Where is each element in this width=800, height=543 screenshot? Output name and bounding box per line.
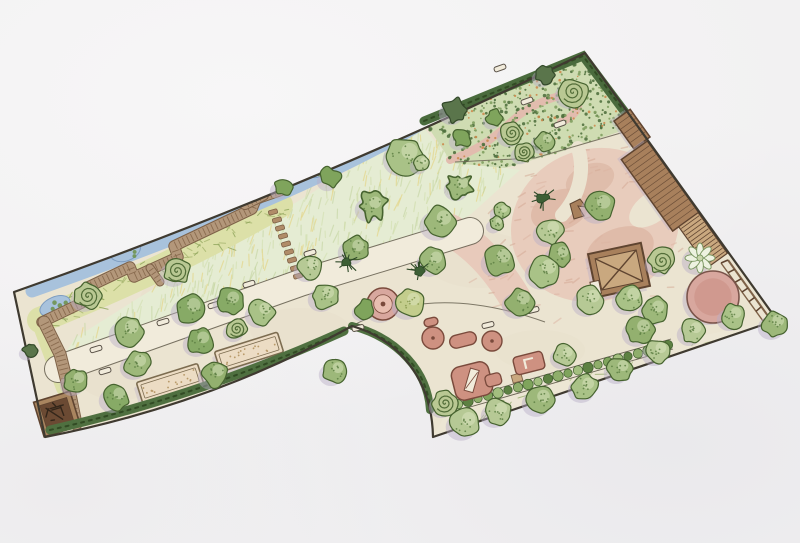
canopy-dot [527, 306, 529, 308]
canopy-dot [469, 419, 471, 421]
canopy-dot [461, 423, 463, 425]
canopy-dot [372, 198, 374, 200]
canopy-dot [631, 298, 633, 300]
canopy-dot [779, 324, 781, 326]
canopy-dot [328, 293, 330, 295]
canopy-dot [125, 333, 127, 335]
canopy-dot [373, 207, 375, 209]
canopy-dot [724, 315, 726, 317]
tree-canopy [275, 180, 294, 196]
canopy-dot [417, 303, 419, 305]
canopy-dot [495, 225, 497, 227]
canopy-dot [646, 324, 648, 326]
canopy-highlight [517, 292, 530, 305]
canopy-dot [545, 141, 547, 143]
canopy-dot [557, 259, 559, 261]
canopy-dot [501, 414, 503, 416]
canopy-dot [330, 301, 332, 303]
canopy-dot [408, 154, 410, 156]
canopy-dot [502, 213, 504, 215]
canopy-dot [580, 378, 582, 380]
canopy-dot [544, 264, 546, 266]
canopy-dot [406, 158, 408, 160]
canopy-dot [263, 308, 265, 310]
canopy-dot [321, 298, 323, 300]
canopy-dot [593, 298, 595, 300]
canopy-dot [404, 145, 406, 147]
pond-plant [256, 192, 259, 195]
canopy-dot [577, 392, 579, 394]
canopy-dot [213, 364, 215, 366]
canopy-dot [197, 331, 199, 333]
canopy-dot [557, 354, 559, 356]
canopy-dot [363, 208, 365, 210]
bench [494, 64, 507, 73]
canopy-dot [466, 423, 468, 425]
canopy-dot [547, 398, 549, 400]
tree-canopy [453, 130, 471, 147]
canopy-dot [454, 184, 456, 186]
canopy-dot [405, 307, 407, 309]
canopy-dot [71, 378, 73, 380]
canopy-dot [314, 259, 316, 261]
canopy-dot [543, 405, 545, 407]
canopy-dot [337, 367, 339, 369]
canopy-dot [210, 368, 212, 370]
canopy-dot [494, 411, 496, 413]
canopy-dot [563, 253, 565, 255]
canopy-dot [135, 328, 137, 330]
canopy-dot [379, 201, 381, 203]
canopy-dot [192, 318, 194, 320]
canopy-dot [546, 272, 548, 274]
canopy-dot [596, 208, 598, 210]
canopy-dot [623, 298, 625, 300]
canopy-dot [214, 376, 216, 378]
canopy-dot [640, 332, 642, 334]
canopy-dot [601, 215, 603, 217]
canopy-dot [411, 299, 413, 301]
canopy-dot [502, 418, 504, 420]
canopy-dot [557, 251, 559, 253]
canopy-dot [655, 350, 657, 352]
canopy-dot [601, 197, 603, 199]
canopy-dot [194, 308, 196, 310]
palm-center [697, 255, 703, 261]
canopy-dot [73, 386, 75, 388]
canopy-dot [618, 371, 620, 373]
canopy-dot [398, 152, 400, 154]
canopy-dot [730, 311, 732, 313]
canopy-dot [226, 299, 228, 301]
canopy-dot [541, 228, 543, 230]
canopy-dot [496, 206, 498, 208]
pond-plant [311, 166, 315, 170]
canopy-dot [540, 393, 542, 395]
canopy-dot [127, 324, 129, 326]
canopy-dot [539, 264, 541, 266]
canopy-dot [542, 399, 544, 401]
canopy-dot [503, 255, 505, 257]
canopy-dot [495, 405, 497, 407]
canopy-dot [693, 328, 695, 330]
canopy-dot [648, 329, 650, 331]
canopy-dot [456, 193, 458, 195]
play-disc-center [431, 336, 435, 340]
canopy-dot [506, 258, 508, 260]
hedgerow-shrub [583, 362, 593, 372]
canopy-highlight [582, 378, 594, 390]
play-disc-center [490, 339, 494, 343]
canopy-dot [583, 388, 585, 390]
canopy-dot [502, 412, 504, 414]
canopy-dot [400, 301, 402, 303]
canopy-dot [134, 366, 136, 368]
canopy-dot [416, 160, 418, 162]
canopy-dot [123, 395, 125, 397]
canopy-dot [210, 374, 212, 376]
pond-plant [133, 250, 137, 254]
canopy-dot [644, 327, 646, 329]
canopy-dot [352, 249, 354, 251]
canopy-dot [564, 355, 566, 357]
canopy-dot [222, 370, 224, 372]
pond-plant [244, 192, 248, 196]
canopy-dot [545, 133, 547, 135]
canopy-dot [340, 375, 342, 377]
canopy-dot [434, 227, 436, 229]
canopy-dot [734, 314, 736, 316]
canopy-dot [441, 217, 443, 219]
canopy-dot [568, 359, 570, 361]
canopy-dot [769, 320, 771, 322]
canopy-dot [585, 381, 587, 383]
canopy-dot [592, 307, 594, 309]
scanned-plan-paper [0, 0, 800, 543]
hedgerow-shrub [573, 366, 582, 375]
canopy-dot [215, 374, 217, 376]
canopy-dot [203, 346, 205, 348]
compost-scribble [51, 420, 54, 421]
sand-ring-center [381, 302, 386, 307]
canopy-dot [650, 349, 652, 351]
canopy-dot [547, 280, 549, 282]
canopy-dot [75, 380, 77, 382]
canopy-dot [333, 370, 335, 372]
canopy-dot [599, 203, 601, 205]
canopy-dot [542, 263, 544, 265]
canopy-dot [533, 401, 535, 403]
canopy-dot [136, 363, 138, 365]
canopy-dot [689, 330, 691, 332]
hedgerow-shrub [493, 388, 503, 398]
canopy-dot [438, 266, 440, 268]
canopy-dot [371, 211, 373, 213]
canopy-dot [405, 154, 407, 156]
canopy-dot [638, 301, 640, 303]
canopy-dot [196, 310, 198, 312]
canopy-dot [500, 259, 502, 261]
canopy-dot [519, 301, 521, 303]
canopy-dot [409, 303, 411, 305]
canopy-dot [463, 420, 465, 422]
canopy-dot [561, 357, 563, 359]
canopy-highlight [627, 288, 640, 301]
canopy-dot [139, 355, 141, 357]
canopy-dot [132, 332, 134, 334]
canopy-dot [461, 187, 463, 189]
canopy-dot [122, 336, 124, 338]
canopy-dot [633, 307, 635, 309]
canopy-dot [777, 326, 779, 328]
canopy-dot [255, 304, 257, 306]
canopy-dot [72, 381, 74, 383]
canopy-dot [441, 224, 443, 226]
canopy-dot [626, 371, 628, 373]
canopy-dot [631, 295, 633, 297]
canopy-dot [498, 256, 500, 258]
canopy-dot [392, 155, 394, 157]
canopy-dot [332, 362, 334, 364]
canopy-dot [652, 307, 654, 309]
pond-plant [119, 247, 123, 251]
canopy-dot [227, 302, 229, 304]
canopy-dot [141, 367, 143, 369]
canopy-dot [309, 274, 311, 276]
canopy-dot [565, 353, 567, 355]
canopy-dot [112, 398, 114, 400]
canopy-dot [563, 349, 565, 351]
canopy-dot [653, 308, 655, 310]
canopy-dot [492, 220, 494, 222]
canopy-dot [265, 311, 267, 313]
canopy-dot [587, 388, 589, 390]
canopy-dot [194, 342, 196, 344]
canopy-dot [199, 309, 201, 311]
garden-plan-drawing [0, 0, 800, 543]
canopy-dot [125, 330, 127, 332]
canopy-dot [232, 301, 234, 303]
canopy-highlight [691, 322, 702, 333]
canopy-dot [354, 248, 356, 250]
pond-plant [246, 197, 250, 201]
canopy-dot [653, 357, 655, 359]
canopy-dot [519, 294, 521, 296]
canopy-dot [561, 258, 563, 260]
canopy-dot [409, 300, 411, 302]
canopy-dot [493, 262, 495, 264]
canopy-dot [643, 332, 645, 334]
canopy-dot [526, 303, 528, 305]
canopy-dot [548, 230, 550, 232]
canopy-dot [611, 365, 613, 367]
hedgerow-shrub [543, 374, 552, 383]
canopy-dot [392, 153, 394, 155]
canopy-dot [263, 317, 265, 319]
canopy-dot [595, 197, 597, 199]
canopy-dot [657, 314, 659, 316]
canopy-dot [262, 305, 264, 307]
canopy-highlight [496, 218, 502, 224]
canopy-dot [429, 260, 431, 262]
canopy-dot [414, 297, 416, 299]
canopy-dot [650, 303, 652, 305]
canopy-dot [353, 251, 355, 253]
canopy-dot [546, 401, 548, 403]
canopy-dot [540, 145, 542, 147]
canopy-dot [459, 429, 461, 431]
canopy-dot [359, 252, 361, 254]
canopy-dot [198, 348, 200, 350]
canopy-dot [731, 316, 733, 318]
canopy-dot [116, 396, 118, 398]
canopy-dot [179, 307, 181, 309]
hedgerow-shrub [633, 349, 642, 358]
canopy-dot [464, 430, 466, 432]
canopy-dot [553, 266, 555, 268]
canopy-dot [500, 418, 502, 420]
canopy-dot [229, 300, 231, 302]
canopy-dot [728, 318, 730, 320]
canopy-dot [435, 261, 437, 263]
canopy-dot [337, 378, 339, 380]
canopy-dot [692, 326, 694, 328]
canopy-dot [781, 318, 783, 320]
canopy-dot [363, 246, 365, 248]
canopy-dot [629, 299, 631, 301]
canopy-dot [582, 295, 584, 297]
canopy-highlight [587, 290, 600, 303]
canopy-dot [616, 372, 618, 374]
canopy-dot [619, 365, 621, 367]
canopy-dot [726, 316, 728, 318]
canopy-dot [592, 293, 594, 295]
canopy-dot [550, 229, 552, 231]
canopy-dot [431, 255, 433, 257]
canopy-dot [589, 299, 591, 301]
canopy-dot [624, 365, 626, 367]
canopy-dot [692, 329, 694, 331]
canopy-dot [544, 234, 546, 236]
canopy-dot [440, 219, 442, 221]
canopy-dot [433, 261, 435, 263]
canopy-dot [500, 250, 502, 252]
canopy-dot [457, 186, 459, 188]
canopy-highlight [401, 143, 417, 159]
canopy-dot [544, 267, 546, 269]
canopy-dot [187, 305, 189, 307]
canopy-dot [107, 397, 109, 399]
canopy-dot [464, 421, 466, 423]
canopy-dot [456, 428, 458, 430]
canopy-dot [696, 338, 698, 340]
canopy-dot [327, 295, 329, 297]
canopy-dot [459, 183, 461, 185]
canopy-dot [187, 300, 189, 302]
canopy-dot [549, 234, 551, 236]
canopy-dot [624, 293, 626, 295]
canopy-dot [191, 340, 193, 342]
canopy-dot [771, 315, 773, 317]
canopy-dot [77, 380, 79, 382]
canopy-dot [517, 300, 519, 302]
hedgerow-shrub [594, 361, 602, 369]
canopy-dot [234, 299, 236, 301]
canopy-dot [650, 309, 652, 311]
canopy-dot [522, 310, 524, 312]
canopy-dot [598, 198, 600, 200]
canopy-dot [659, 348, 661, 350]
canopy-dot [616, 367, 618, 369]
canopy-dot [410, 160, 412, 162]
canopy-dot [341, 373, 343, 375]
canopy-dot [591, 209, 593, 211]
canopy-dot [583, 393, 585, 395]
canopy-dot [324, 298, 326, 300]
hedgerow-shrub [564, 369, 572, 377]
canopy-dot [269, 307, 271, 309]
canopy-dot [642, 330, 644, 332]
canopy-dot [587, 297, 589, 299]
canopy-dot [587, 293, 589, 295]
canopy-dot [772, 321, 774, 323]
canopy-dot [656, 306, 658, 308]
canopy-dot [496, 255, 498, 257]
canopy-dot [627, 300, 629, 302]
canopy-dot [497, 223, 499, 225]
pond-plant [52, 300, 57, 305]
canopy-dot [322, 290, 324, 292]
canopy-dot [546, 137, 548, 139]
canopy-dot [314, 268, 316, 270]
canopy-dot [543, 393, 545, 395]
canopy-dot [661, 311, 663, 313]
canopy-dot [490, 263, 492, 265]
canopy-dot [315, 266, 317, 268]
canopy-dot [540, 400, 542, 402]
canopy-dot [233, 303, 235, 305]
canopy-dot [331, 368, 333, 370]
canopy-dot [775, 321, 777, 323]
canopy-dot [563, 248, 565, 250]
canopy-dot [129, 363, 131, 365]
canopy-dot [199, 340, 201, 342]
canopy-dot [658, 352, 660, 354]
canopy-dot [500, 208, 502, 210]
canopy-highlight [458, 177, 469, 188]
canopy-dot [407, 301, 409, 303]
pond-plant [124, 244, 127, 247]
canopy-dot [655, 311, 657, 313]
canopy-dot [358, 242, 360, 244]
canopy-dot [192, 312, 194, 314]
canopy-dot [422, 167, 424, 169]
canopy-dot [552, 263, 554, 265]
canopy-dot [499, 261, 501, 263]
canopy-dot [556, 232, 558, 234]
pond-plant [132, 254, 136, 258]
canopy-dot [498, 212, 500, 214]
canopy-dot [446, 214, 448, 216]
canopy-dot [112, 394, 114, 396]
tree [604, 359, 633, 384]
canopy-dot [651, 352, 653, 354]
canopy-dot [190, 308, 192, 310]
canopy-dot [775, 323, 777, 325]
canopy-dot [489, 410, 491, 412]
canopy-dot [371, 207, 373, 209]
canopy-highlight [113, 388, 125, 400]
